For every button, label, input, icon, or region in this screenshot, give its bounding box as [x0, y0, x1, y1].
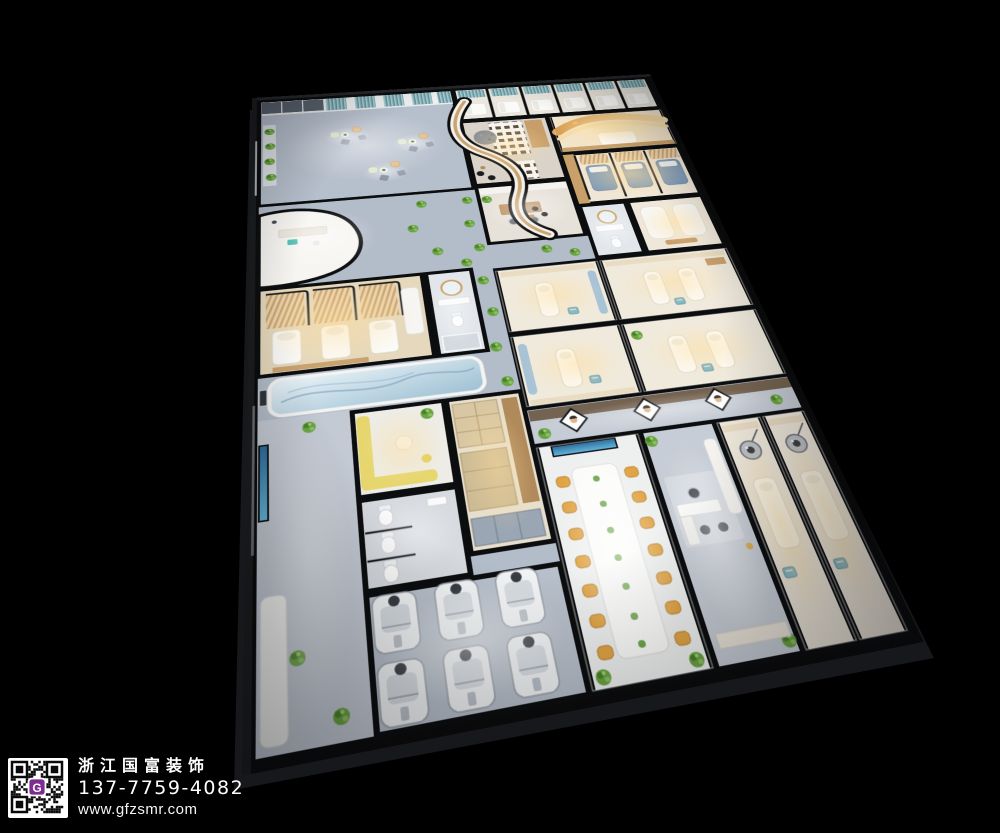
phone-number: 137-7759-4082	[78, 777, 244, 800]
watermark: G 浙江国富装饰 137-7759-4082 www.gfzsmr.com	[8, 756, 244, 819]
qr-logo-letter: G	[32, 780, 41, 794]
website-url: www.gfzsmr.com	[78, 800, 244, 819]
company-name: 浙江国富装饰	[78, 756, 244, 777]
render-stage: G 浙江国富装饰 137-7759-4082 www.gfzsmr.com	[0, 0, 1000, 833]
qr-code: G	[8, 758, 68, 818]
